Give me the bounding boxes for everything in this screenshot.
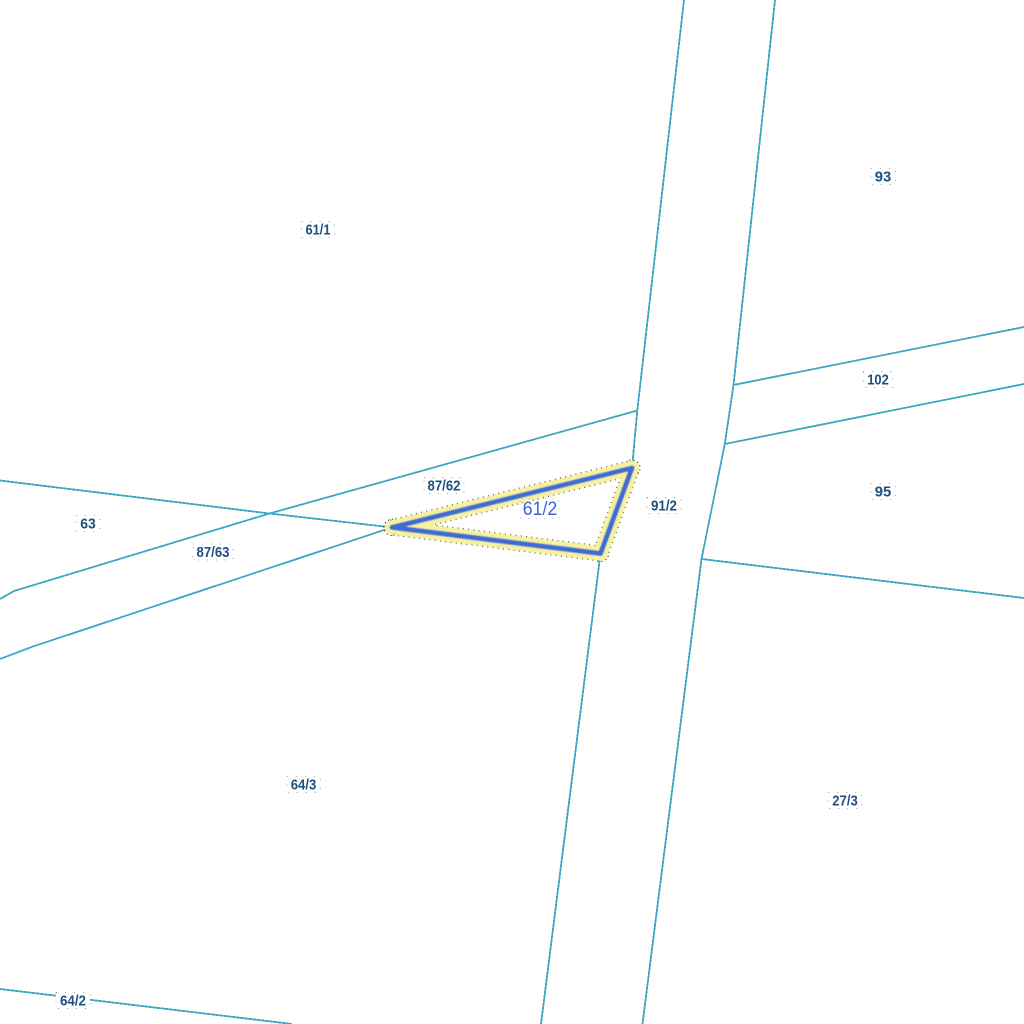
- svg-text:64/2: 64/2: [60, 994, 86, 1010]
- svg-text:61/2: 61/2: [523, 499, 558, 520]
- svg-text:93: 93: [875, 170, 892, 186]
- svg-text:63: 63: [80, 517, 96, 533]
- svg-text:61/1: 61/1: [306, 223, 331, 239]
- svg-text:102: 102: [867, 373, 889, 389]
- svg-text:64/3: 64/3: [291, 778, 317, 794]
- svg-text:91/2: 91/2: [651, 499, 677, 515]
- svg-text:87/63: 87/63: [197, 545, 230, 561]
- svg-text:27/3: 27/3: [832, 794, 858, 810]
- svg-text:87/62: 87/62: [428, 479, 461, 495]
- svg-text:95: 95: [875, 485, 892, 501]
